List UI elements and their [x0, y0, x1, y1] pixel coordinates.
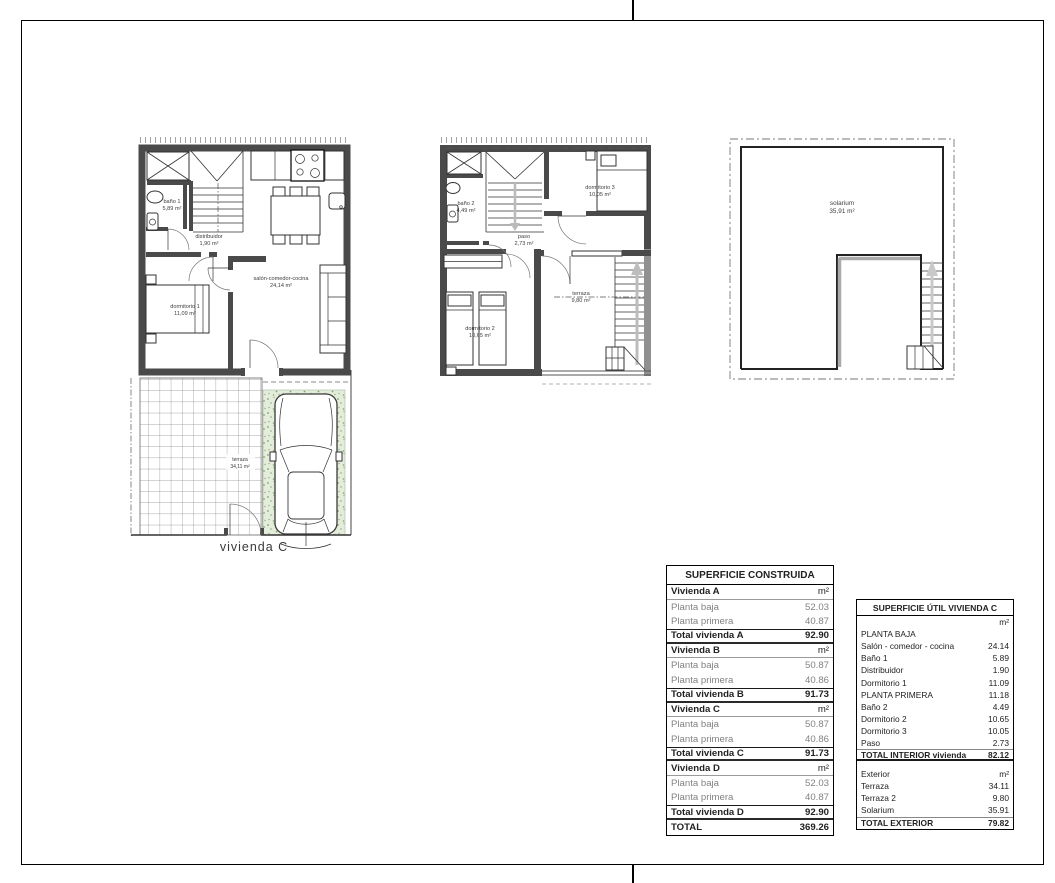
table-row: Vivienda Am²	[667, 585, 833, 600]
row-value: 369.26	[800, 822, 829, 833]
side-mirror-right	[336, 452, 342, 461]
table-row: Vivienda Bm²	[667, 644, 833, 659]
table-row: TOTAL EXTERIOR79.82	[857, 817, 1013, 829]
row-label: Dormitorio 3	[861, 726, 907, 736]
row-label: Total vivienda C	[671, 748, 744, 759]
svg-text:dormitorio 1: dormitorio 1	[170, 304, 200, 310]
shaft-cross	[147, 152, 189, 180]
row-value: m²	[818, 586, 829, 597]
dining-table	[271, 187, 320, 244]
svg-text:salón-comedor-cocina: salón-comedor-cocina	[253, 276, 309, 282]
row-label: Planta primera	[671, 792, 733, 803]
row-label: Vivienda B	[671, 645, 720, 656]
svg-text:35,91 m²: 35,91 m²	[829, 208, 854, 215]
table-row: Planta baja50.87	[667, 717, 833, 732]
row-value: 92.90	[805, 807, 829, 818]
table-row: Dormitorio 111.09	[857, 676, 1013, 688]
table-row: m²	[857, 616, 1013, 628]
table-row: Planta baja52.03	[667, 600, 833, 615]
row-label: Baño 2	[861, 702, 888, 712]
svg-text:9,80 m²: 9,80 m²	[572, 298, 591, 304]
registration-mark-top	[632, 0, 634, 21]
row-value: 4.49	[993, 702, 1009, 712]
table-row: Solarium35.91	[857, 804, 1013, 816]
hatch-band	[139, 137, 350, 143]
row-value: 91.73	[805, 748, 829, 759]
car-top-view	[270, 394, 342, 549]
row-value: 52.03	[805, 778, 829, 789]
row-value: 40.87	[805, 792, 829, 803]
row-value: 52.03	[805, 602, 829, 613]
svg-text:10,05 m²: 10,05 m²	[589, 192, 611, 198]
table-row: Terraza 29.80	[857, 792, 1013, 804]
table-superficie-util: SUPERFICIE ÚTIL VIVIENDA C m² PLANTA BAJ…	[856, 599, 1014, 830]
row-value: m²	[818, 704, 829, 715]
table-row: Total vivienda C91.73	[667, 747, 833, 762]
row-value: 40.86	[805, 734, 829, 745]
row-value: 34.11	[989, 781, 1009, 791]
row-label: Dormitorio 2	[861, 714, 907, 724]
row-value: 10.65	[988, 714, 1009, 724]
svg-text:terraza: terraza	[572, 291, 590, 297]
table-row: Exteriorm²	[857, 768, 1013, 780]
svg-text:paso: paso	[518, 234, 530, 240]
roof-staircase	[907, 260, 943, 369]
row-value: 11.09	[989, 678, 1009, 688]
svg-text:24,14 m²: 24,14 m²	[270, 283, 292, 289]
row-value: 82.12	[988, 750, 1009, 760]
table-row: TOTAL369.26	[667, 820, 833, 835]
exterior-staircase	[554, 257, 645, 370]
table-row: Planta baja52.03	[667, 776, 833, 791]
room-labels: solarium 35,91 m²	[829, 200, 854, 215]
bed-dormitorio3	[586, 151, 647, 211]
svg-text:terraza: terraza	[232, 457, 248, 463]
hatch-band	[440, 137, 651, 143]
svg-text:dormitorio 2: dormitorio 2	[465, 326, 495, 332]
row-value: m²	[999, 617, 1009, 627]
row-label: Planta baja	[671, 719, 719, 730]
row-label: Terraza	[861, 781, 889, 791]
row-value: 91.73	[805, 689, 829, 700]
svg-text:baño 1: baño 1	[163, 199, 180, 205]
row-value: 10.05	[988, 726, 1009, 736]
row-label: Dormitorio 1	[861, 678, 907, 688]
row-label: Terraza 2	[861, 793, 896, 803]
table-row: Planta primera40.87	[667, 614, 833, 629]
row-label: Salón - comedor - cocina	[861, 641, 954, 651]
table-row: Paso2.73	[857, 737, 1013, 749]
table-row: Salón - comedor - cocina24.14	[857, 640, 1013, 652]
row-label: Vivienda C	[671, 704, 720, 715]
svg-text:11,09 m²: 11,09 m²	[174, 311, 196, 317]
row-label: Total vivienda B	[671, 689, 744, 700]
row-label: TOTAL INTERIOR vivienda	[861, 750, 966, 760]
row-label: TOTAL	[671, 822, 702, 833]
row-label: Planta baja	[671, 660, 719, 671]
svg-text:10,65 m²: 10,65 m²	[469, 333, 491, 339]
table-row: PLANTA PRIMERA11.18	[857, 689, 1013, 701]
row-value: 2.73	[993, 738, 1009, 748]
table-row: Planta primera40.86	[667, 673, 833, 688]
registration-mark-bottom	[632, 864, 634, 883]
row-label: PLANTA BAJA	[861, 629, 916, 639]
row-label: Planta primera	[671, 675, 733, 686]
row-label: Vivienda A	[671, 586, 720, 597]
table-row: Baño 15.89	[857, 652, 1013, 664]
row-value: 11.18	[989, 690, 1009, 700]
table-row: Planta baja50.87	[667, 658, 833, 673]
floor-plan-planta-baja: baño 1 5,89 m² distribuidor 1,90 m² dorm…	[133, 137, 361, 385]
staircase	[191, 151, 243, 232]
row-label: TOTAL EXTERIOR	[861, 818, 933, 828]
table-row: PLANTA BAJA	[857, 628, 1013, 640]
row-value: 9.80	[993, 793, 1009, 803]
row-label: Distribuidor	[861, 665, 903, 675]
row-value: m²	[818, 763, 829, 774]
row-label: Baño 1	[861, 653, 888, 663]
table-title: SUPERFICIE CONSTRUIDA	[667, 566, 833, 585]
row-value: 24.14	[988, 641, 1009, 651]
floor-plan-solarium: solarium 35,91 m²	[727, 136, 957, 386]
solarium-outline	[741, 147, 943, 369]
shaft-cross	[447, 152, 481, 174]
table-row: Planta primera40.87	[667, 791, 833, 806]
table-row: Distribuidor1.90	[857, 664, 1013, 676]
table-row: TOTAL INTERIOR vivienda82.12	[857, 749, 1013, 761]
sofa	[320, 265, 346, 353]
table-row: Dormitorio 310.05	[857, 725, 1013, 737]
row-label: Vivienda D	[671, 763, 720, 774]
row-label: PLANTA PRIMERA	[861, 690, 933, 700]
svg-text:solarium: solarium	[830, 200, 854, 207]
staircase	[486, 152, 544, 232]
table-row: Total vivienda A92.90	[667, 629, 833, 644]
bathroom-fixtures	[147, 191, 163, 230]
table-row: Vivienda Cm²	[667, 703, 833, 718]
row-label: Total vivienda D	[671, 807, 744, 818]
row-label: Planta primera	[671, 734, 733, 745]
row-value: 50.87	[805, 660, 829, 671]
svg-text:distribuidor: distribuidor	[195, 234, 222, 240]
svg-text:dormitorio 3: dormitorio 3	[585, 185, 615, 191]
svg-text:baño 2: baño 2	[457, 201, 474, 207]
down-arrow-icon	[510, 223, 520, 231]
svg-text:2,73 m²: 2,73 m²	[515, 241, 534, 247]
table-row: Dormitorio 210.65	[857, 713, 1013, 725]
row-value: 40.87	[805, 616, 829, 627]
svg-text:5,89 m²: 5,89 m²	[163, 206, 182, 212]
table-title: SUPERFICIE ÚTIL VIVIENDA C	[857, 600, 1013, 616]
table-row: Baño 24.49	[857, 701, 1013, 713]
table-row: Planta primera40.86	[667, 732, 833, 747]
closet	[444, 255, 502, 268]
plan-caption-vivienda-c: vivienda C	[196, 540, 312, 554]
row-label: Solarium	[861, 805, 894, 815]
row-value: m²	[818, 645, 829, 656]
row-label: Planta baja	[671, 778, 719, 789]
row-value: 50.87	[805, 719, 829, 730]
table-row: Vivienda Dm²	[667, 761, 833, 776]
svg-text:34,11 m²: 34,11 m²	[230, 464, 250, 470]
svg-text:4,49 m²: 4,49 m²	[457, 208, 476, 214]
row-label: Planta primera	[671, 616, 733, 627]
room-labels: terraza 34,11 m²	[226, 454, 255, 470]
side-mirror-left	[270, 452, 276, 461]
row-value: 92.90	[805, 630, 829, 641]
table-row: Total vivienda B91.73	[667, 688, 833, 703]
row-value: 40.86	[805, 675, 829, 686]
row-value: 5.89	[993, 653, 1009, 663]
row-label: Total vivienda A	[671, 630, 744, 641]
row-value: 1.90	[993, 665, 1009, 675]
svg-text:1,90 m²: 1,90 m²	[200, 241, 219, 247]
row-label: Planta baja	[671, 602, 719, 613]
table-row: Terraza34.11	[857, 780, 1013, 792]
row-label: Paso	[861, 738, 880, 748]
table-row: Total vivienda D92.90	[667, 805, 833, 820]
table-section-gap	[857, 761, 1013, 768]
plan-exterior-terraza: terraza 34,11 m²	[126, 368, 376, 564]
walls	[142, 148, 347, 376]
row-value: 79.82	[988, 818, 1009, 828]
floor-plan-planta-primera: baño 2 4,49 m² dormitorio 3 10,05 m² pas…	[434, 137, 662, 389]
row-label: Exterior	[861, 769, 890, 779]
table-superficie-construida: SUPERFICIE CONSTRUIDA Vivienda Am² Plant…	[666, 565, 834, 836]
up-arrow-icon	[926, 260, 938, 276]
row-value: m²	[999, 769, 1009, 779]
row-value: 35.91	[988, 805, 1009, 815]
